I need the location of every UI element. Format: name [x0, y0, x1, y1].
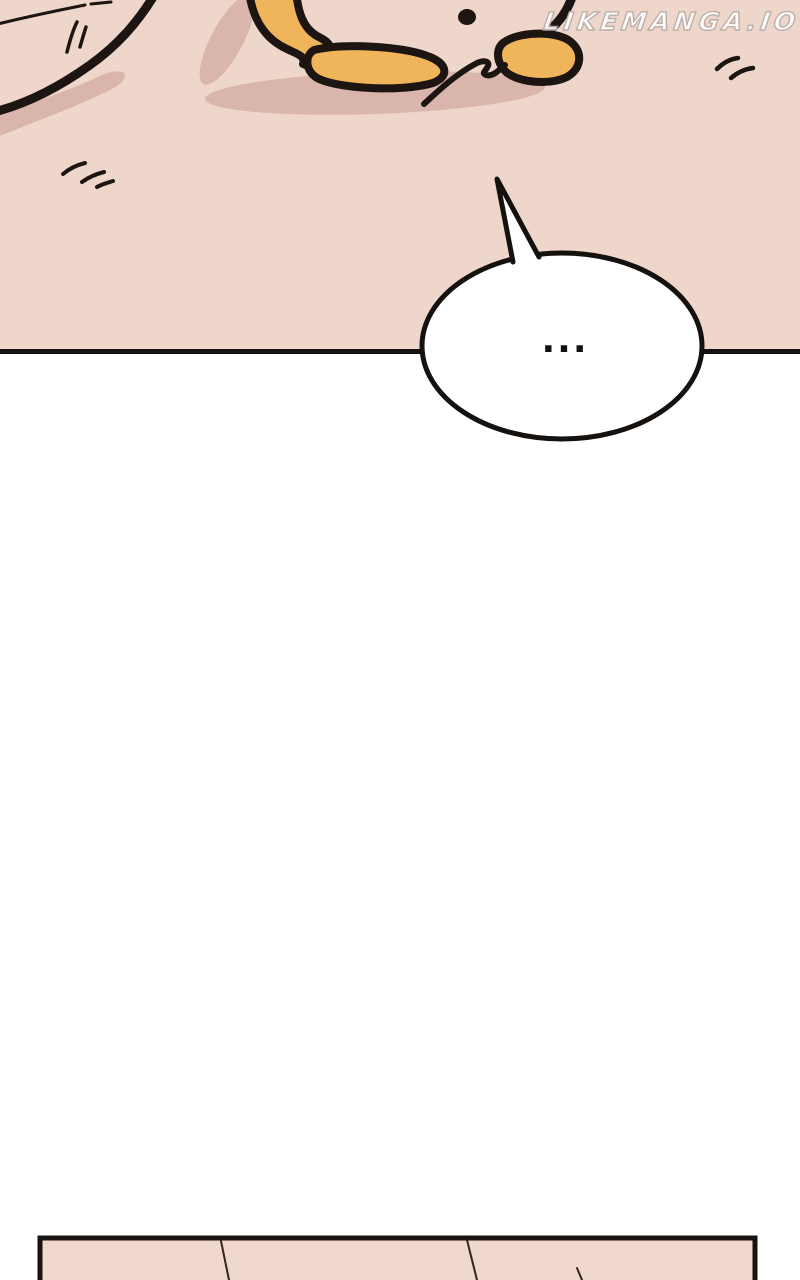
- webtoon-page[interactable]: ... LIKEMANGA.IO: [0, 0, 800, 1280]
- character-nose-dot: [458, 9, 476, 25]
- sketch-line-dash: [91, 2, 111, 4]
- comic-artwork: ...: [0, 0, 800, 1280]
- character-paw-left: [307, 46, 444, 88]
- bottom-panel-frame: [40, 1238, 755, 1280]
- character-paw-right: [498, 34, 579, 82]
- speech-bubble-text: ...: [541, 320, 588, 361]
- panel-bottom: [40, 1238, 755, 1280]
